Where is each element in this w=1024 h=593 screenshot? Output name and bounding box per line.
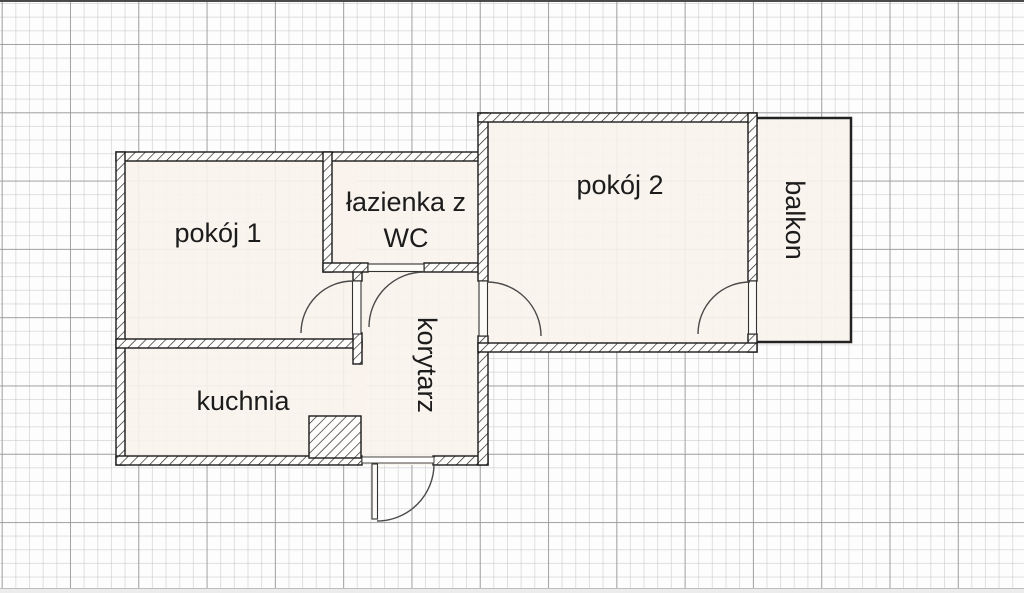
label-pokoj-1: pokój 1	[174, 215, 261, 251]
label-lazienka-line2: WC	[346, 220, 466, 256]
wall-top	[116, 152, 483, 161]
wall-corridor-right-top	[478, 113, 488, 281]
floorplan-drawing	[0, 0, 1024, 593]
door-entrance-arc	[377, 464, 434, 521]
label-korytarz: korytarz	[409, 317, 445, 413]
floorplan-canvas: pokój 1 łazienka z WC pokój 2 balkon kor…	[0, 0, 1024, 593]
entrance-threshold	[362, 457, 434, 463]
wall-pokoj2-bottom	[478, 343, 757, 352]
door-pokoj-1-leaf	[353, 281, 362, 334]
wall-pokoj2-right-top	[748, 113, 757, 281]
wall-stub-bottom	[353, 333, 362, 364]
label-lazienka-line1: łazienka z	[346, 184, 466, 220]
label-lazienka: łazienka z WC	[346, 184, 466, 256]
door-balkon-leaf	[749, 281, 757, 334]
wall-pokoj1-kitchen	[116, 339, 362, 348]
canvas-bottom-edge	[0, 588, 1024, 593]
door-entrance-leaf	[372, 464, 378, 519]
kitchen-shaft-block	[309, 416, 361, 458]
wall-bath-bottom-right	[424, 263, 483, 272]
wall-bath-bottom-left	[323, 263, 368, 272]
wall-pokoj2-top	[478, 113, 757, 122]
wall-corridor-right-bottom	[478, 336, 488, 465]
door-entrance[interactable]	[372, 464, 434, 521]
wall-left	[116, 152, 125, 465]
wall-bath-left	[323, 152, 332, 272]
label-balkon: balkon	[777, 180, 813, 260]
label-pokoj-2: pokój 2	[576, 167, 663, 203]
door-pokoj-2-leaf	[479, 281, 488, 336]
door-lazienka-leaf	[368, 264, 424, 272]
room-area-pokoj-2[interactable]	[482, 117, 753, 348]
label-kuchnia: kuchnia	[196, 383, 289, 419]
